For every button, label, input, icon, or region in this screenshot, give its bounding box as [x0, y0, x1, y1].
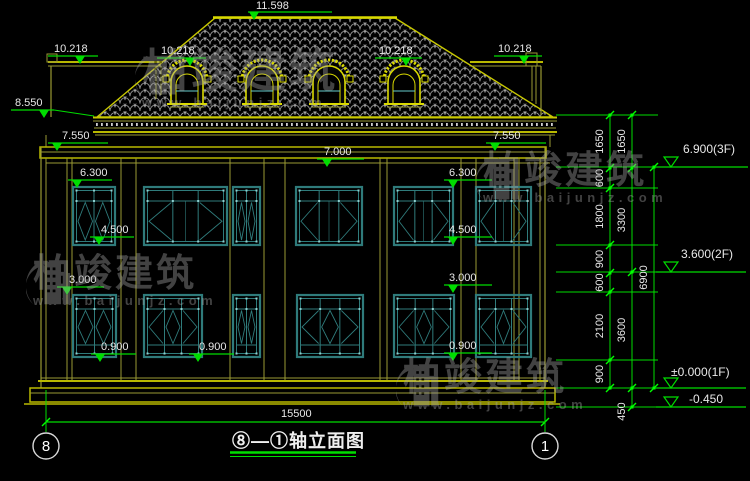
- window: [394, 295, 454, 357]
- elevation-dim-label: 10.218: [379, 45, 413, 57]
- chain-dim-label: 900: [594, 365, 606, 383]
- window: [297, 295, 363, 357]
- chain-dim-label: 900: [594, 250, 606, 268]
- axis-bubble-8: 8: [42, 438, 50, 455]
- elevation-dim-label: 4.500: [101, 224, 129, 236]
- plinth-base: [24, 378, 560, 404]
- floor-level-label: -0.450: [689, 392, 723, 406]
- chain-dim-label: 600: [594, 273, 606, 291]
- chain-dim-label: 6900: [638, 265, 650, 289]
- elevation-dim-label: 6.300: [80, 167, 108, 179]
- elevation-dim-label: 7.000: [324, 146, 352, 158]
- floor-level-label: 6.900(3F): [683, 142, 735, 156]
- window: [233, 295, 260, 357]
- bottom-dimension: 15500: [42, 390, 549, 432]
- elevation-dim-label: 0.900: [101, 341, 129, 353]
- window: [73, 187, 115, 245]
- elevation-dim-label: 7.550: [493, 130, 521, 142]
- elevation-dim-label: 11.598: [256, 0, 289, 12]
- chain-dim-label: 2100: [594, 314, 606, 338]
- floor-level-markers: 6.900(3F)3.600(2F)±0.000(1F)-0.450: [656, 142, 748, 407]
- elevation-dim-label: 8.550: [15, 97, 43, 109]
- cad-elevation-drawing: 1650600180090060021009001650330036004506…: [0, 0, 750, 481]
- elevation-drawing-svg: 1650600180090060021009001650330036004506…: [0, 0, 750, 481]
- chain-dim-label: 1650: [616, 129, 628, 153]
- floor-level-label: ±0.000(1F): [671, 365, 730, 379]
- window: [394, 187, 453, 245]
- window: [296, 187, 362, 245]
- dimension-chains: 1650600180090060021009001650330036004506…: [594, 111, 658, 421]
- elevation-dim-label: 0.900: [449, 340, 477, 352]
- drawing-title-text: ⑧—①轴立面图: [232, 430, 365, 451]
- window: [233, 187, 260, 245]
- elevation-dim-label: 0.900: [199, 341, 227, 353]
- window: [144, 187, 227, 245]
- floor-level-label: 3.600(2F): [681, 247, 733, 261]
- elevation-dim-label: 3.000: [69, 274, 97, 286]
- elevation-dim-label: 7.550: [62, 130, 90, 142]
- window: [476, 187, 531, 245]
- chain-dim-label: 600: [594, 169, 606, 187]
- elevation-dim-label: 10.218: [498, 43, 532, 55]
- window: [144, 295, 202, 357]
- elevation-dim-label: 4.500: [449, 224, 477, 236]
- axis-bubble-1: 1: [541, 438, 549, 455]
- window: [476, 295, 531, 357]
- drawing-title: ⑧—①轴立面图: [230, 430, 365, 457]
- chain-dim-label: 1800: [594, 204, 606, 228]
- chain-dim-label: 3300: [616, 208, 628, 232]
- upper-cornice-band: [40, 147, 550, 163]
- chain-dim-label: 450: [616, 402, 628, 420]
- elevation-dim-label: 3.000: [449, 272, 477, 284]
- elevation-dim-label: 10.218: [54, 43, 88, 55]
- chain-dim-label: 3600: [616, 318, 628, 342]
- eave-cornice: [46, 118, 557, 148]
- overall-width-dim: 15500: [281, 408, 312, 420]
- chain-dim-label: 1650: [594, 129, 606, 153]
- elevation-dim-label: 10.218: [161, 45, 195, 57]
- elevation-dim-label: 6.300: [449, 167, 477, 179]
